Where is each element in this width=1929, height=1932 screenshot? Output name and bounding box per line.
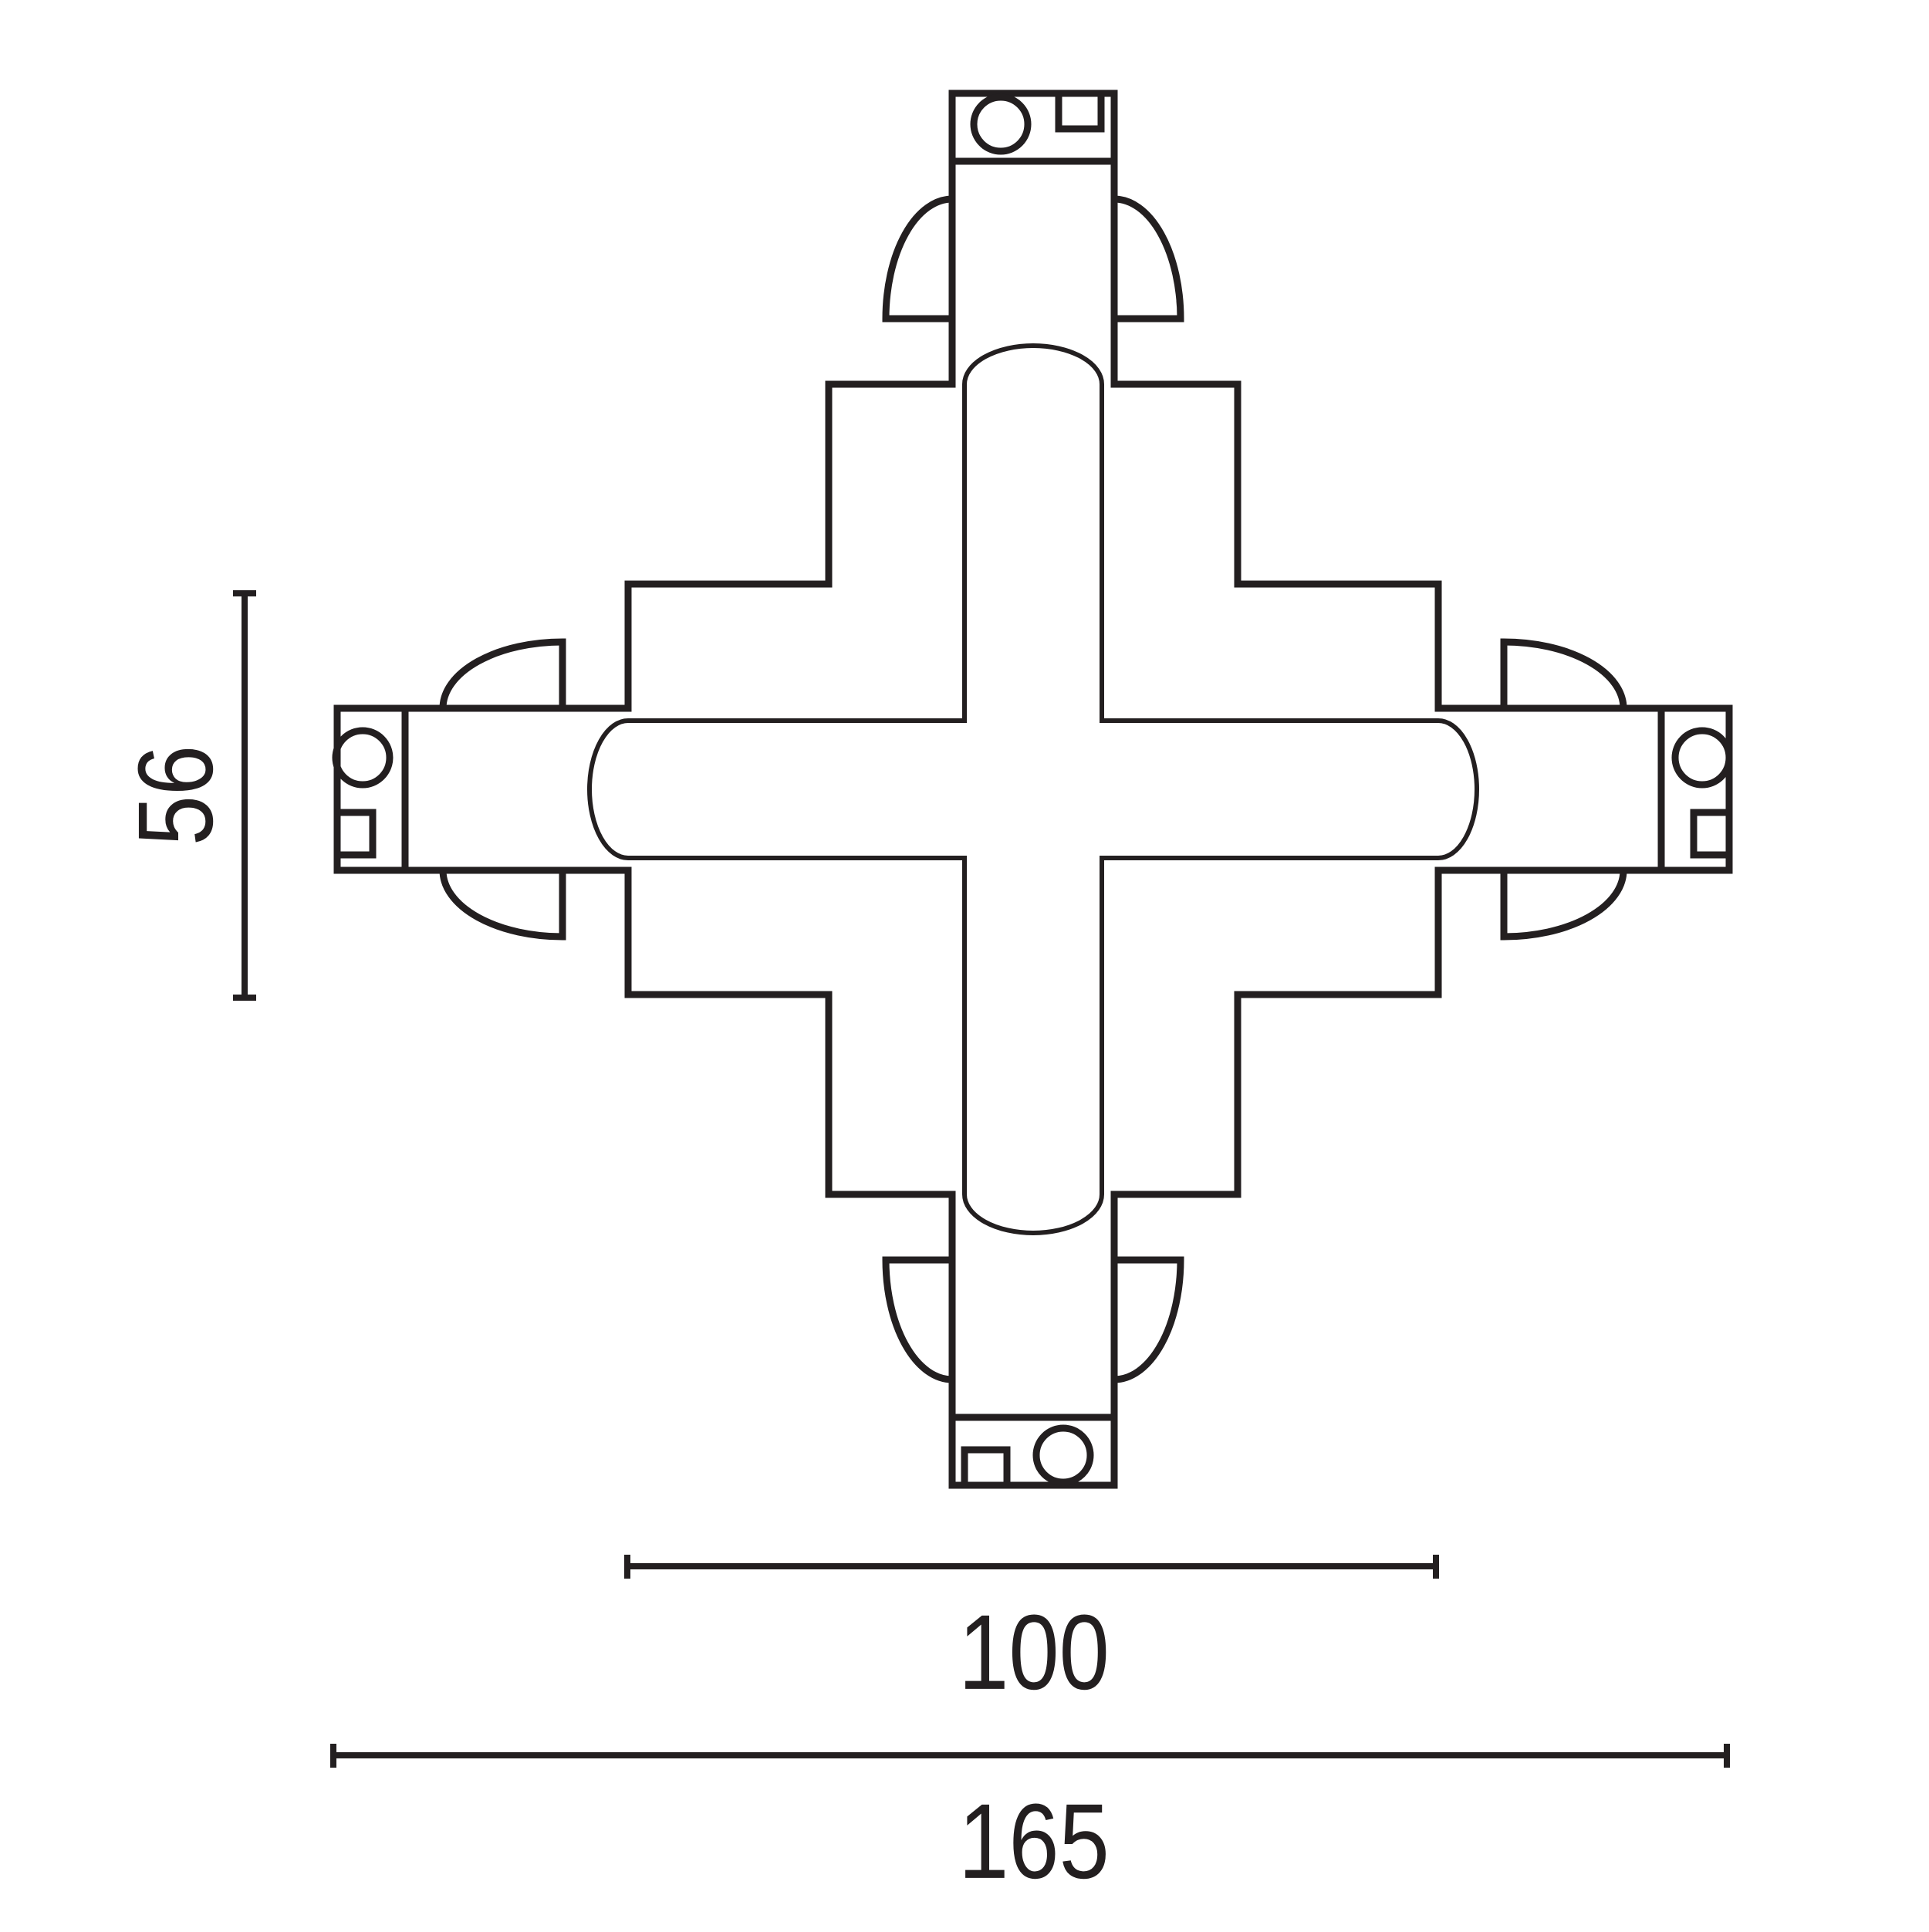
track-channel-slot	[590, 346, 1477, 1233]
dimension-56-label: 56	[117, 745, 235, 846]
wing-top-right-icon	[1114, 199, 1181, 319]
wing-bottom-left-icon	[886, 1260, 952, 1380]
dimension-100: 100	[627, 1555, 1436, 1712]
drawing-canvas: 56 100 165	[0, 0, 1929, 1932]
dimension-165: 165	[333, 1744, 1727, 1901]
wing-bottom-right-icon	[1114, 1260, 1181, 1380]
connector-body	[336, 93, 1729, 1485]
dimension-165-label: 165	[958, 1782, 1110, 1901]
wing-right-bottom-icon	[1504, 870, 1623, 937]
technical-drawing: 56 100 165	[0, 0, 1929, 1932]
dimension-100-label: 100	[958, 1593, 1110, 1712]
dimension-56: 56	[117, 593, 256, 998]
wing-top-left-icon	[886, 199, 952, 319]
wing-left-top-icon	[443, 642, 562, 708]
wing-right-top-icon	[1504, 642, 1623, 708]
wing-left-bottom-icon	[443, 870, 562, 937]
